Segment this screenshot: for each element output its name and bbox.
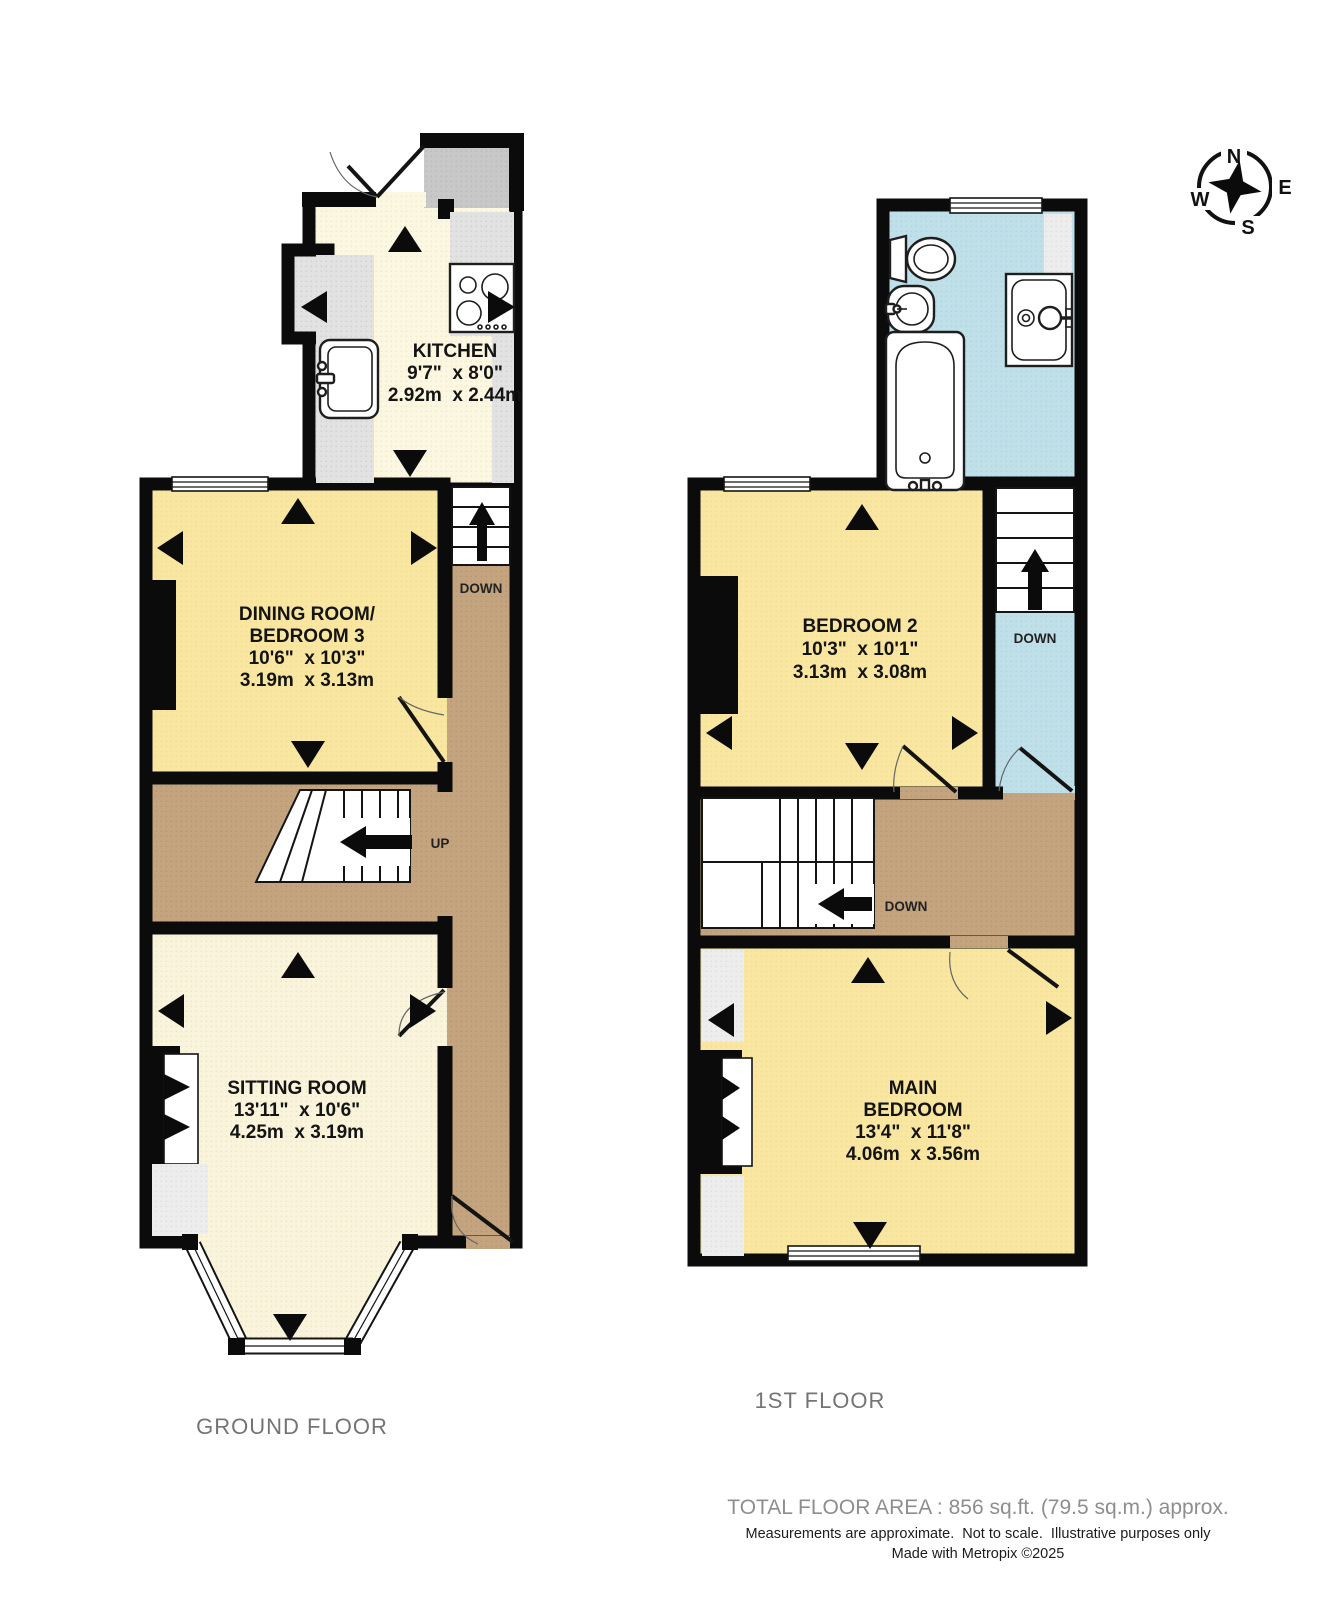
stairs-landing [702,798,874,928]
main-bedroom-dims-imperial: 13'4" x 11'8" [855,1122,971,1143]
credit-text: Made with Metropix ©2025 [892,1546,1065,1562]
bathtub-icon [886,332,964,490]
floorplan-svg: KITCHEN 9'7" x 8'0" 2.92m x 2.44m DINING… [0,0,1330,1600]
bedroom2-chimney-breast [690,576,738,714]
kitchen-dims-imperial: 9'7" x 8'0" [407,363,503,384]
disclaimer-text: Measurements are approximate. Not to sca… [745,1526,1211,1542]
sitting-dims-metric: 4.25m x 3.19m [230,1122,364,1143]
bedroom2-dims-imperial: 10'3" x 10'1" [802,639,919,660]
floorplan-page: KITCHEN 9'7" x 8'0" 2.92m x 2.44m DINING… [0,0,1330,1600]
main-bedroom-label-line1: MAIN [889,1078,938,1099]
dining-label-line2: BEDROOM 3 [249,626,364,647]
compass-rose: N E W S [1186,144,1298,239]
first-down-label: DOWN [1014,631,1057,646]
bathroom-window [950,198,1042,213]
main-bedroom-fireplace [690,1050,752,1174]
kitchen-dims-metric: 2.92m x 2.44m [388,385,522,406]
total-floor-area: TOTAL FLOOR AREA : 856 sq.ft. (79.5 sq.m… [727,1496,1228,1519]
sitting-label: SITTING ROOM [227,1078,366,1099]
cellar-down-label: DOWN [460,581,503,596]
sitting-fireplace [146,1046,198,1172]
dining-window [172,477,268,491]
dining-label-line1: DINING ROOM/ [239,604,376,625]
main-bedroom-window [788,1246,920,1261]
stairs-down-cellar [452,487,510,565]
basin-icon [886,286,934,332]
bedroom2-dims-metric: 3.13m x 3.08m [793,662,927,683]
rear-porch [302,133,524,219]
rear-door [330,146,424,197]
toilet-icon [890,236,955,282]
sink-icon [317,340,378,418]
bay-window [182,1234,418,1355]
landing-down-label: DOWN [885,899,928,914]
ground-floor-title: GROUND FLOOR [196,1414,388,1439]
footer: TOTAL FLOOR AREA : 856 sq.ft. (79.5 sq.m… [727,1496,1228,1562]
compass-south: S [1241,217,1254,239]
kitchen-label: KITCHEN [413,341,497,362]
ground-floor-plan: KITCHEN 9'7" x 8'0" 2.92m x 2.44m DINING… [146,133,524,1439]
compass-north: N [1227,146,1241,168]
compass-west: W [1191,189,1210,211]
dining-dims-metric: 3.19m x 3.13m [240,670,374,691]
first-floor-title: 1ST FLOOR [755,1388,886,1413]
main-bedroom-dims-metric: 4.06m x 3.56m [846,1144,980,1165]
ground-corridor [446,484,516,1242]
sitting-dims-imperial: 13'11" x 10'6" [234,1100,360,1121]
dining-dims-imperial: 10'6" x 10'3" [249,648,366,669]
compass-east: E [1278,177,1291,199]
sitting-floor-patch [152,1164,208,1236]
first-floor-plan: BEDROOM 2 10'3" x 10'1" 3.13m x 3.08m MA… [690,198,1081,1413]
stairs-down-first [996,488,1074,612]
dining-chimney-breast [146,580,176,710]
hob-icon [450,264,514,332]
bedroom2-window [724,477,810,491]
main-bedroom-label-line2: BEDROOM [863,1100,962,1121]
stairs-up-label: UP [431,836,450,851]
shower-icon [1006,274,1072,366]
bedroom2-label: BEDROOM 2 [802,616,917,637]
